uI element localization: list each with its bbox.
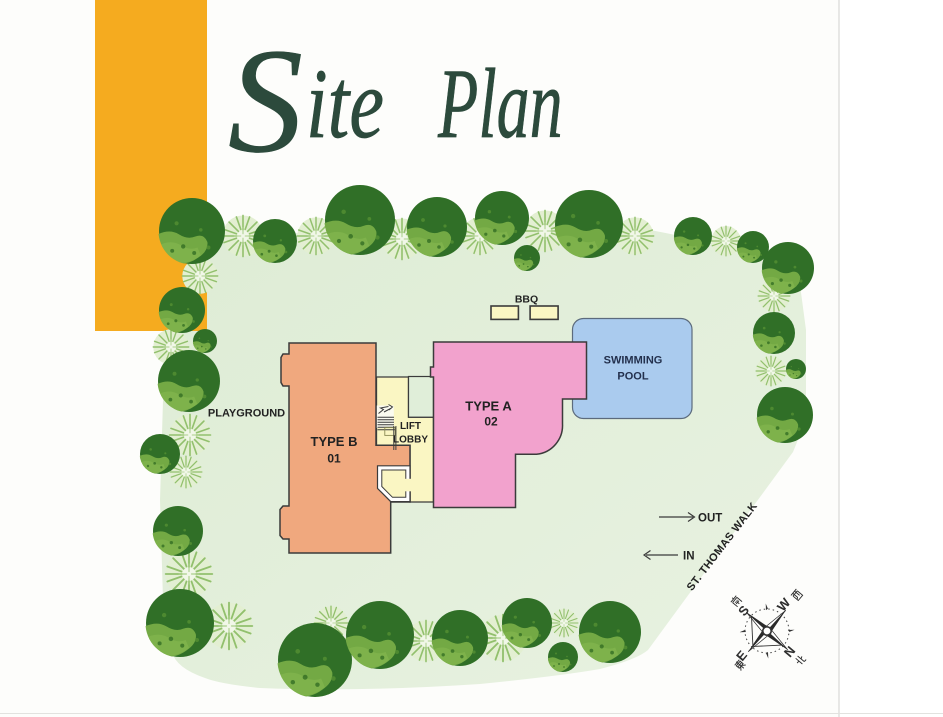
svg-text:LOBBY: LOBBY — [393, 435, 428, 446]
svg-text:SWIMMING: SWIMMING — [604, 355, 663, 367]
svg-text:TYPE A: TYPE A — [465, 399, 512, 414]
svg-text:01: 01 — [327, 452, 341, 466]
svg-text:OUT: OUT — [698, 513, 722, 525]
svg-text:TYPE B: TYPE B — [311, 434, 358, 449]
svg-text:LIFT: LIFT — [400, 421, 421, 432]
svg-text:POOL: POOL — [617, 371, 648, 383]
svg-text:ite: ite — [306, 49, 384, 159]
svg-text:BBQ: BBQ — [515, 294, 538, 306]
svg-text:S: S — [228, 18, 303, 184]
svg-text:PLAYGROUND: PLAYGROUND — [208, 408, 285, 420]
svg-text:Plan: Plan — [437, 50, 562, 160]
svg-text:IN: IN — [683, 551, 695, 563]
svg-text:02: 02 — [484, 415, 498, 429]
